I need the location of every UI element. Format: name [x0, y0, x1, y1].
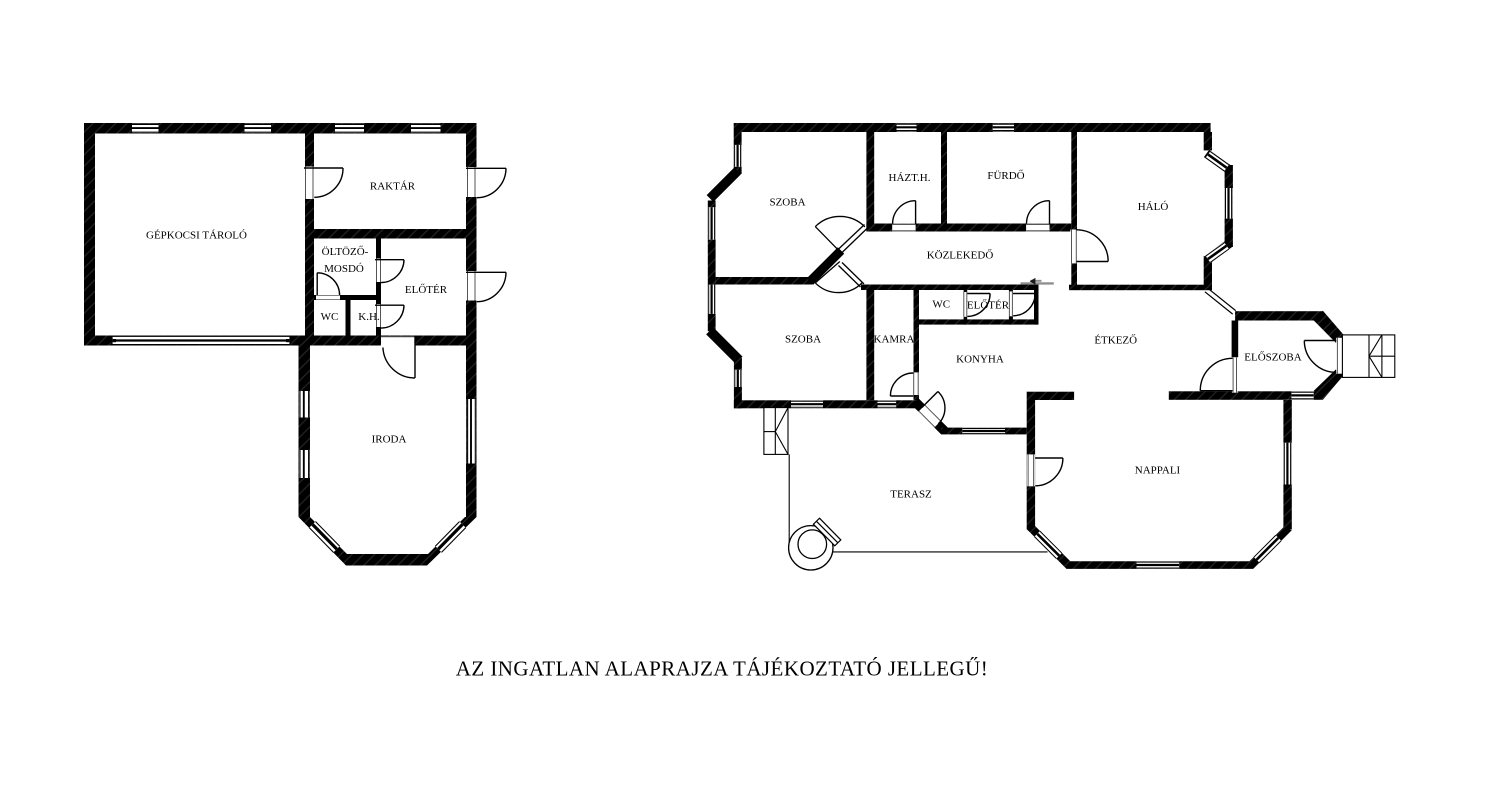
svg-text:ELŐSZOBA: ELŐSZOBA — [1244, 352, 1302, 364]
svg-text:SZOBA: SZOBA — [785, 334, 821, 346]
svg-text:KONYHA: KONYHA — [956, 354, 1004, 366]
svg-text:ÉTKEZŐ: ÉTKEZŐ — [1094, 335, 1137, 347]
svg-text:NAPPALI: NAPPALI — [1135, 465, 1181, 477]
svg-text:K.H.: K.H. — [358, 311, 380, 323]
svg-text:ÖLTÖZŐ-: ÖLTÖZŐ- — [322, 246, 369, 258]
svg-text:HÁLÓ: HÁLÓ — [1138, 201, 1169, 213]
svg-text:AZ INGATLAN ALAPRAJZA TÁJÉKOZT: AZ INGATLAN ALAPRAJZA TÁJÉKOZTATÓ JELLEG… — [456, 657, 988, 681]
svg-text:MOSDÓ: MOSDÓ — [324, 263, 364, 275]
svg-text:KÖZLEKEDŐ: KÖZLEKEDŐ — [927, 250, 994, 262]
svg-text:HÁZT.H.: HÁZT.H. — [889, 172, 931, 184]
svg-text:RAKTÁR: RAKTÁR — [370, 181, 416, 193]
svg-text:ELŐTÉR: ELŐTÉR — [405, 284, 448, 296]
svg-text:KAMRA: KAMRA — [874, 334, 915, 346]
svg-text:ELŐTÉR: ELŐTÉR — [967, 300, 1010, 312]
svg-text:FÜRDŐ: FÜRDŐ — [987, 170, 1024, 182]
svg-text:GÉPKOCSI TÁROLÓ: GÉPKOCSI TÁROLÓ — [146, 230, 247, 242]
svg-text:WC: WC — [321, 311, 339, 323]
svg-text:SZOBA: SZOBA — [769, 197, 805, 209]
svg-text:TERASZ: TERASZ — [890, 489, 932, 501]
svg-text:IRODA: IRODA — [372, 434, 407, 446]
svg-text:WC: WC — [932, 299, 950, 311]
